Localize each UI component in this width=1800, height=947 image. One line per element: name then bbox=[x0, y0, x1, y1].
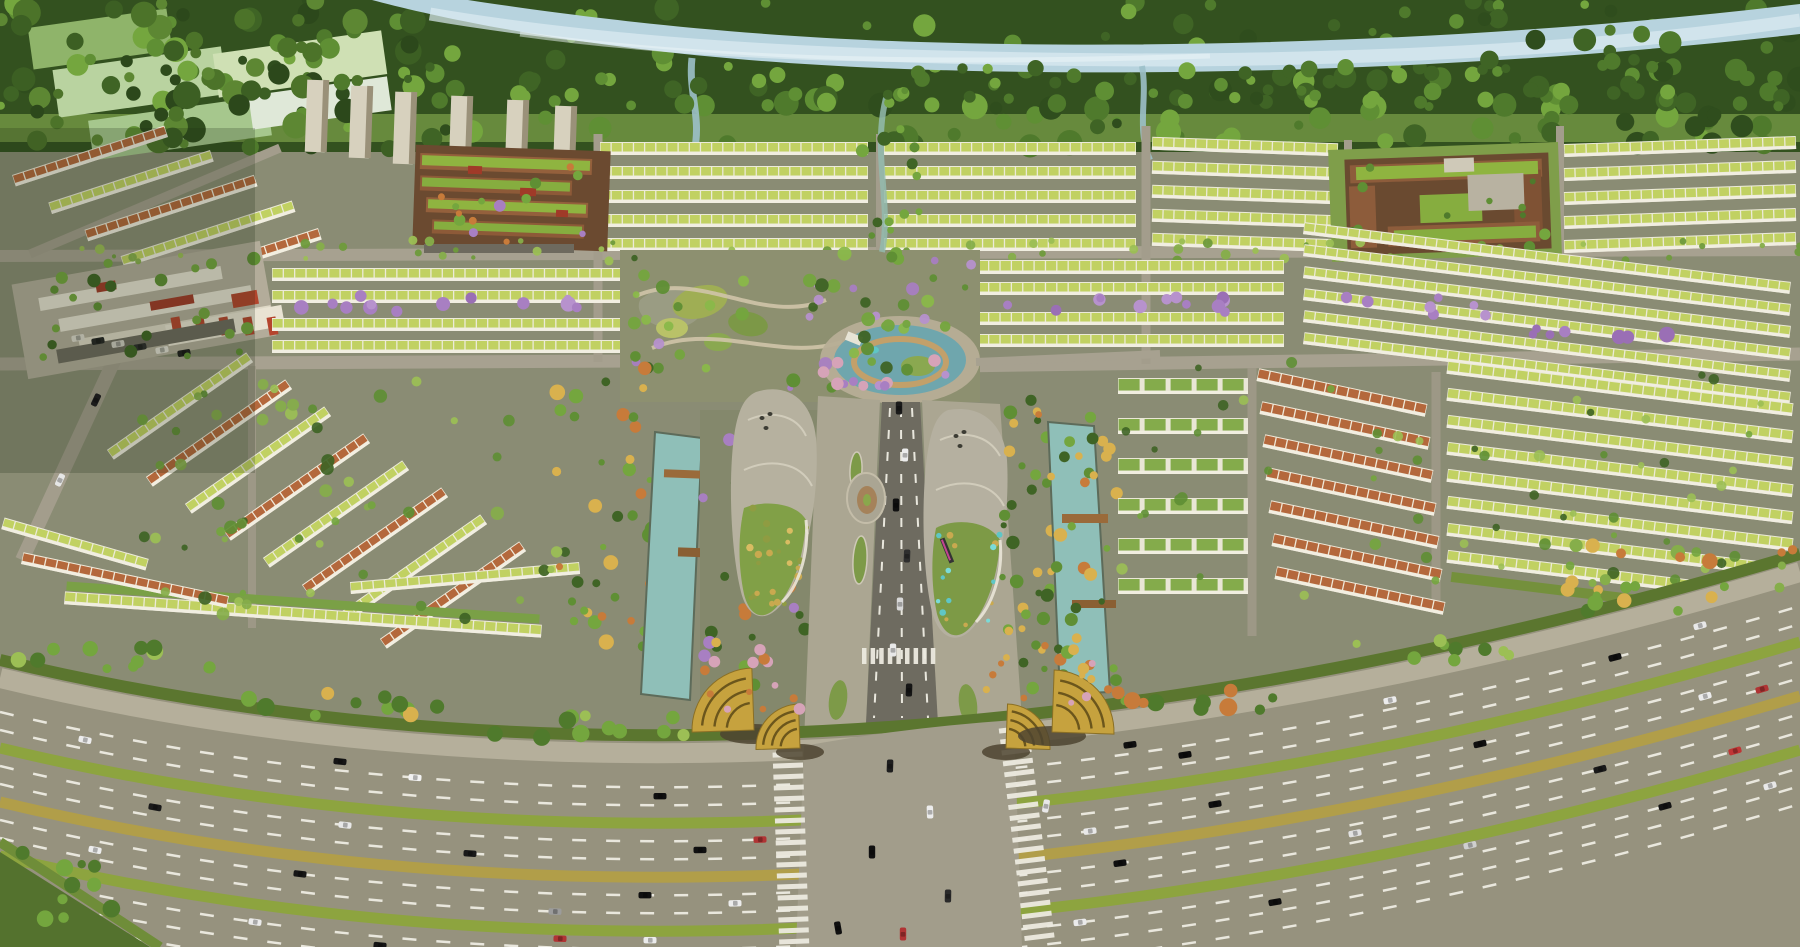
townhouse-row bbox=[600, 166, 868, 179]
render-canvas bbox=[0, 0, 1800, 947]
villa-row bbox=[1118, 538, 1248, 554]
canal-bridge bbox=[1062, 514, 1108, 523]
townhouse-row bbox=[272, 318, 624, 331]
townhouse-row bbox=[884, 166, 1136, 179]
townhouse-row bbox=[966, 312, 1284, 325]
villa-row bbox=[1118, 378, 1248, 394]
townhouse-row bbox=[600, 142, 868, 155]
school-red-roof bbox=[468, 166, 482, 174]
aerial-masterplan-render bbox=[0, 0, 1800, 947]
townhouse-row bbox=[272, 268, 624, 281]
school-parking bbox=[424, 244, 574, 253]
townhouse-row bbox=[600, 214, 868, 227]
townhouse-row bbox=[272, 340, 624, 353]
roof-vent bbox=[764, 426, 769, 430]
roof-vent bbox=[760, 416, 765, 420]
roof-vent bbox=[958, 444, 963, 448]
campus-gray-roof bbox=[1467, 173, 1524, 211]
villa-row bbox=[1118, 578, 1248, 594]
townhouse-row bbox=[966, 282, 1284, 295]
boulevard-crosswalk bbox=[862, 648, 935, 664]
roof-vent bbox=[768, 412, 773, 416]
roundabout-green bbox=[863, 494, 871, 506]
roof-vent bbox=[962, 430, 967, 434]
townhouse-row bbox=[884, 238, 1136, 251]
villa-row bbox=[1118, 418, 1248, 434]
hillside-shadow bbox=[0, 128, 255, 473]
townhouse-row bbox=[966, 260, 1284, 274]
townhouse-row bbox=[884, 142, 1136, 155]
canal-bridge bbox=[664, 469, 704, 478]
townhouse-row bbox=[600, 190, 868, 203]
roof-vent bbox=[954, 434, 959, 438]
townhouse-row bbox=[884, 190, 1136, 203]
villa-row bbox=[1118, 458, 1248, 474]
townhouse-row bbox=[966, 334, 1284, 347]
school-red-roof bbox=[556, 210, 568, 217]
townhouse-row bbox=[884, 214, 1136, 227]
campus-white-block bbox=[1444, 157, 1474, 172]
